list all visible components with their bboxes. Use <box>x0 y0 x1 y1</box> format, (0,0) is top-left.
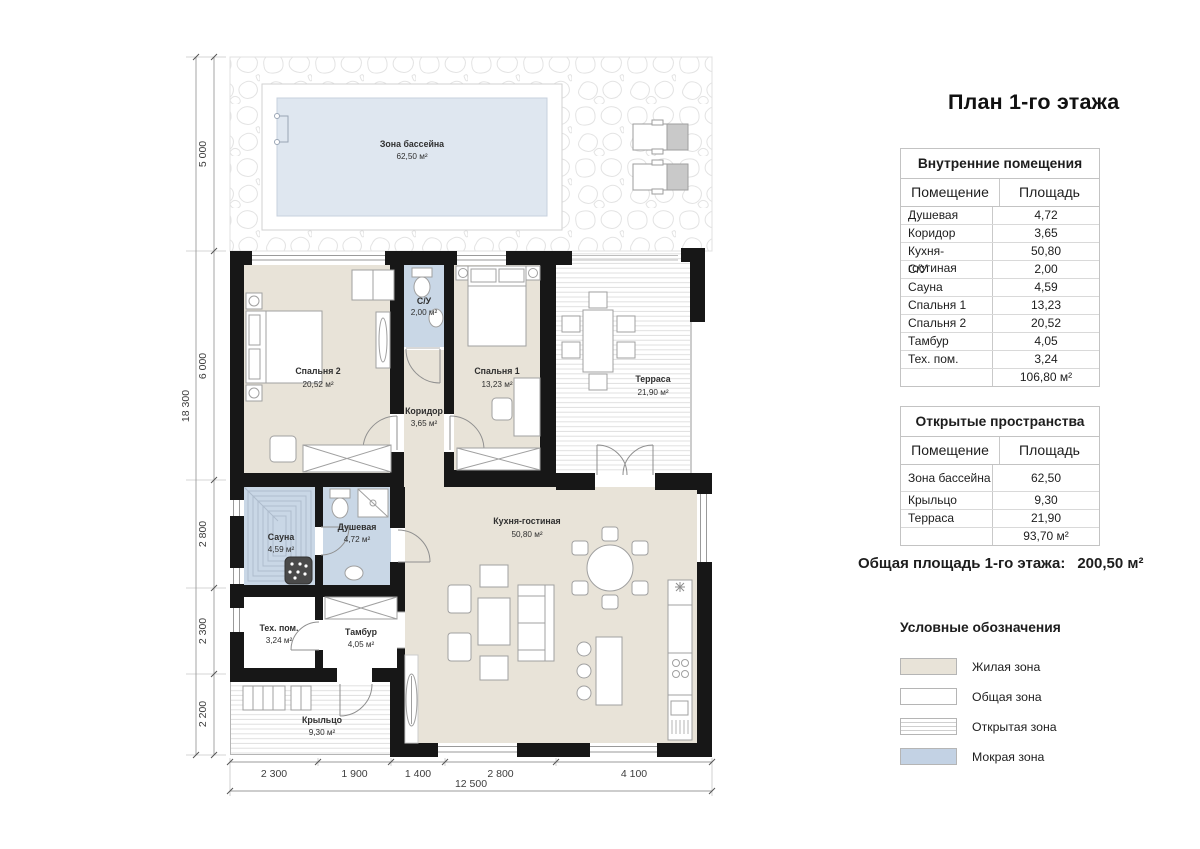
legend-item-wet: Мокрая зона <box>900 748 1140 765</box>
stool-icon <box>577 642 591 656</box>
wet-zone-swatch-icon <box>900 748 957 765</box>
column-header-room: Помещение <box>901 437 1000 464</box>
chair-icon <box>632 581 648 595</box>
open-spaces-table: Открытые пространства Помещение Площадь … <box>900 406 1100 546</box>
outdoor-table-icon <box>583 310 613 372</box>
chair-icon <box>572 581 588 595</box>
column-header-area: Площадь <box>1000 179 1099 206</box>
svg-text:50,80 м²: 50,80 м² <box>511 530 542 539</box>
svg-text:Тех. пом.: Тех. пом. <box>259 623 298 633</box>
total-floor-area-value: 200,50 м² <box>1077 555 1143 572</box>
floor-plan-drawing: Зона бассейна 62,50 м² <box>0 0 830 810</box>
svg-text:4,05 м²: 4,05 м² <box>348 640 375 649</box>
svg-text:Душевая: Душевая <box>338 522 377 532</box>
svg-text:Спальня 2: Спальня 2 <box>295 366 340 376</box>
total-area: 106,80 м² <box>993 369 1099 386</box>
svg-text:4,59 м²: 4,59 м² <box>268 545 295 554</box>
side-table-icon <box>480 565 508 587</box>
armchair-icon <box>448 633 471 661</box>
table-header-row: Помещение Площадь <box>901 179 1099 207</box>
legend-item-common: Общая зона <box>900 688 1140 705</box>
page-title: План 1-го этажа <box>948 90 1119 115</box>
stool-icon <box>577 664 591 678</box>
svg-text:2 800: 2 800 <box>197 521 209 547</box>
svg-text:12 500: 12 500 <box>455 778 487 790</box>
interior-rooms-table: Внутренние помещения Помещение Площадь Д… <box>900 148 1100 387</box>
side-table-icon <box>480 656 508 680</box>
chair-icon <box>492 398 512 420</box>
table-title: Внутренние помещения <box>901 149 1099 179</box>
svg-text:13,23 м²: 13,23 м² <box>481 380 512 389</box>
total-floor-area-label: Общая площадь 1-го этажа: <box>858 555 1065 572</box>
table-row: Кухня-гостиная50,80 <box>901 243 1099 261</box>
legend: Условные обозначения Жилая зона Общая зо… <box>900 620 1140 778</box>
svg-text:20,52 м²: 20,52 м² <box>302 380 333 389</box>
wardrobe-icon <box>325 597 397 619</box>
chair-icon <box>562 316 580 332</box>
table-row: Сауна4,59 <box>901 279 1099 297</box>
svg-text:2 300: 2 300 <box>261 768 287 780</box>
column-header-area: Площадь <box>1000 437 1099 464</box>
shower-icon <box>358 489 388 517</box>
bench-icon <box>243 686 285 710</box>
table-row: Тех. пом.3,24 <box>901 351 1099 369</box>
open-zone-swatch-icon <box>900 718 957 735</box>
svg-text:2 300: 2 300 <box>197 618 209 644</box>
chair-icon <box>617 316 635 332</box>
table-total-row: 93,70 м² <box>901 528 1099 545</box>
legend-title: Условные обозначения <box>900 620 1140 635</box>
svg-text:1 900: 1 900 <box>341 768 367 780</box>
coffee-table-icon <box>478 598 510 645</box>
svg-text:Сауна: Сауна <box>268 532 295 542</box>
pool-zone: Зона бассейна 62,50 м² <box>230 57 712 251</box>
nightstand-icon <box>246 385 262 401</box>
svg-text:Коридор: Коридор <box>405 406 443 416</box>
svg-text:2 800: 2 800 <box>487 768 513 780</box>
bench-icon <box>291 686 311 710</box>
svg-text:18 300: 18 300 <box>180 390 192 422</box>
table-row: Спальня 113,23 <box>901 297 1099 315</box>
svg-text:Спальня 1: Спальня 1 <box>474 366 519 376</box>
svg-text:21,90 м²: 21,90 м² <box>637 388 668 397</box>
room-area: 62,50 м² <box>396 152 427 161</box>
table-row: Коридор3,65 <box>901 225 1099 243</box>
total-floor-area: Общая площадь 1-го этажа:200,50 м² <box>858 555 1158 572</box>
sink-icon <box>345 566 363 580</box>
common-zone-swatch-icon <box>900 688 957 705</box>
table-row: С/У2,00 <box>901 261 1099 279</box>
desk-icon <box>514 378 540 436</box>
table-row: Спальня 220,52 <box>901 315 1099 333</box>
svg-text:Кухня-гостиная: Кухня-гостиная <box>493 516 560 526</box>
svg-text:Тамбур: Тамбур <box>345 627 378 637</box>
svg-text:5 000: 5 000 <box>197 141 209 167</box>
floor-plan-page: Зона бассейна 62,50 м² <box>0 0 1200 849</box>
bed-icon <box>468 266 526 346</box>
dining-table-icon <box>587 545 633 591</box>
chair-icon <box>270 436 296 462</box>
chair-icon <box>602 595 618 609</box>
chair-icon <box>632 541 648 555</box>
toilet-icon <box>412 268 432 297</box>
table-row: Душевая4,72 <box>901 207 1099 225</box>
cabinet-icon <box>376 312 390 368</box>
column-header-room: Помещение <box>901 179 1000 206</box>
table-row: Терраса21,90 <box>901 510 1099 528</box>
total-area: 93,70 м² <box>993 528 1099 545</box>
table-row: Тамбур4,05 <box>901 333 1099 351</box>
wardrobe-icon <box>303 445 391 472</box>
svg-text:Терраса: Терраса <box>635 374 670 384</box>
svg-text:6 000: 6 000 <box>197 353 209 379</box>
svg-text:3,65 м²: 3,65 м² <box>411 419 438 428</box>
chair-icon <box>589 374 607 390</box>
terrace-deck <box>556 253 691 473</box>
chair-icon <box>589 292 607 308</box>
table-row: Зона бассейна62,50 <box>901 465 1099 492</box>
table-row: Крыльцо9,30 <box>901 492 1099 510</box>
svg-text:3,24 м²: 3,24 м² <box>266 636 293 645</box>
svg-text:Крыльцо: Крыльцо <box>302 715 343 725</box>
legend-item-open: Открытая зона <box>900 718 1140 735</box>
svg-text:9,30 м²: 9,30 м² <box>309 728 336 737</box>
sofa-icon <box>518 585 554 661</box>
legend-item-living: Жилая зона <box>900 658 1140 675</box>
svg-text:1 400: 1 400 <box>405 768 431 780</box>
wardrobe-icon <box>457 448 540 470</box>
opening <box>397 613 405 647</box>
svg-text:С/У: С/У <box>417 296 432 306</box>
chair-icon <box>572 541 588 555</box>
svg-text:4,72 м²: 4,72 м² <box>344 535 371 544</box>
chair-icon <box>617 342 635 358</box>
room-label: Зона бассейна <box>380 139 444 149</box>
svg-text:2,00 м²: 2,00 м² <box>411 308 438 317</box>
sauna-stove-icon <box>285 557 312 584</box>
chair-icon <box>602 527 618 541</box>
stool-icon <box>577 686 591 700</box>
table-total-row: 106,80 м² <box>901 369 1099 386</box>
sun-lounger-icon <box>633 160 688 194</box>
living-zone-swatch-icon <box>900 658 957 675</box>
svg-text:2 200: 2 200 <box>197 701 209 727</box>
kitchen-counter-icon <box>668 580 692 740</box>
nightstand-icon <box>246 293 262 309</box>
table-title: Открытые пространства <box>901 407 1099 437</box>
armchair-icon <box>448 585 471 613</box>
sun-lounger-icon <box>633 120 688 154</box>
svg-text:4 100: 4 100 <box>621 768 647 780</box>
toilet-icon <box>330 489 350 518</box>
table-header-row: Помещение Площадь <box>901 437 1099 465</box>
chair-icon <box>562 342 580 358</box>
kitchen-island-icon <box>596 637 622 705</box>
